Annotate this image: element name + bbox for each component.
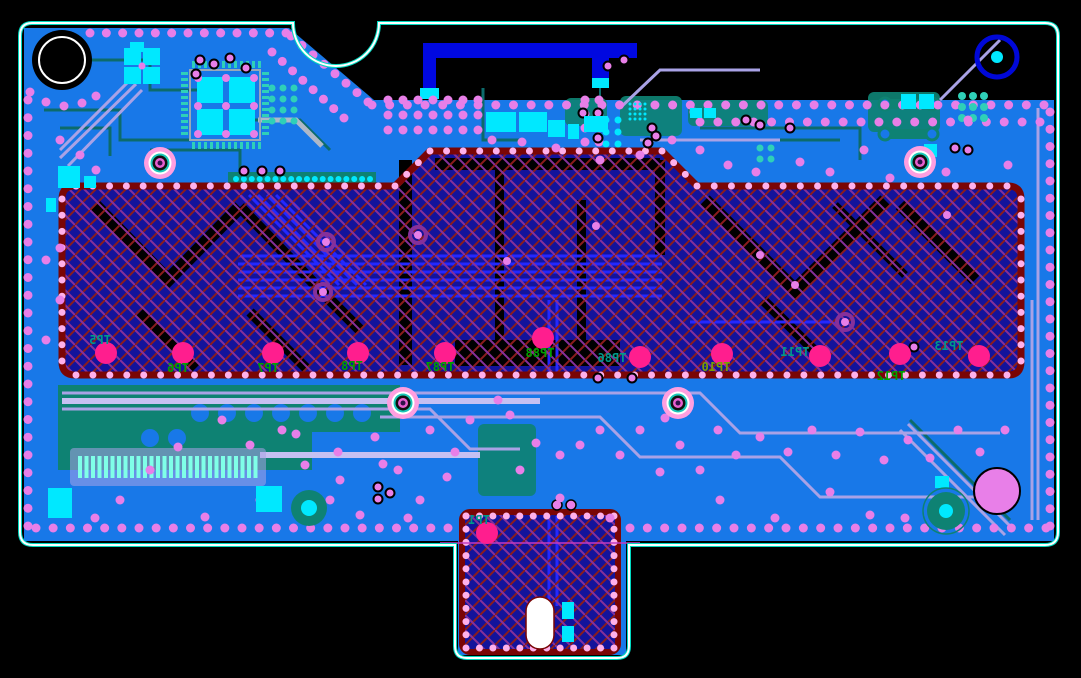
via-dot: [611, 565, 618, 572]
via-dot: [1018, 341, 1025, 348]
via-dot: [810, 101, 819, 110]
via-dot: [265, 29, 274, 38]
via-dot: [1004, 372, 1011, 379]
silkscreen-label-tp8: TP8: [341, 359, 363, 373]
via-dot: [1018, 244, 1025, 251]
via-dot: [403, 171, 410, 178]
silkscreen-label-tp87: TP87: [426, 360, 455, 374]
pcb-layout-drawing[interactable]: TP5TP6TP7TP8TP87TP88TP86TP10TP11TP12TP13…: [0, 0, 1081, 678]
pad-dot: [958, 103, 966, 111]
pad-dot: [615, 117, 622, 124]
via-dot: [728, 183, 735, 190]
via-dot: [326, 372, 333, 379]
via-dot: [59, 341, 66, 348]
via-dot: [42, 98, 51, 107]
via-dot: [278, 57, 287, 66]
via-dot: [863, 101, 872, 110]
via-dot: [953, 372, 960, 379]
via-dot: [184, 29, 193, 38]
pad-dot: [644, 103, 647, 106]
pad-dot: [291, 118, 298, 125]
via-dot: [516, 513, 523, 520]
via-dot: [102, 29, 111, 38]
via-dot: [152, 524, 161, 533]
via-dot: [762, 183, 769, 190]
via-dot: [611, 552, 618, 559]
via-dot: [59, 228, 66, 235]
via-dot: [509, 148, 516, 155]
via-dot: [460, 148, 467, 155]
via-dot: [24, 451, 33, 460]
pad-dot: [639, 108, 642, 111]
pad-dot: [291, 107, 298, 114]
via-dot: [100, 524, 109, 533]
via-dot: [123, 183, 130, 190]
pad-dot: [615, 129, 622, 136]
via-dot: [463, 631, 470, 638]
via-dot: [249, 29, 258, 38]
via-dot: [216, 29, 225, 38]
via-dot: [1046, 159, 1055, 168]
via-dot: [73, 372, 80, 379]
via-dot: [89, 372, 96, 379]
via-dot: [503, 645, 510, 652]
smd-pad: [46, 198, 56, 212]
connector-pin: [247, 456, 251, 478]
via-dot: [821, 118, 830, 127]
connector-pin: [189, 456, 193, 478]
via-dot: [503, 513, 510, 520]
via-dot: [190, 183, 197, 190]
via-dot: [1018, 325, 1025, 332]
via-dot: [24, 397, 33, 406]
via-dot: [293, 372, 300, 379]
edge-connector[interactable]: [70, 448, 266, 486]
via-dot: [323, 524, 332, 533]
via-dot: [24, 309, 33, 318]
connector-pin: [130, 456, 134, 478]
pad-dot: [980, 114, 988, 122]
via-dot: [849, 183, 856, 190]
via-dot: [1042, 524, 1051, 533]
via-dot: [1046, 211, 1055, 220]
via-dot: [987, 372, 994, 379]
pad-dot: [250, 102, 258, 110]
via-dot: [584, 645, 591, 652]
via-dot: [309, 372, 316, 379]
pad-dot: [280, 85, 287, 92]
via-dot: [309, 85, 318, 94]
silkscreen-label-tp13: TP13: [935, 339, 964, 353]
connector-pin: [111, 456, 115, 478]
via-dot: [886, 524, 895, 533]
pad-dot: [629, 108, 632, 111]
via-dot: [670, 159, 677, 166]
via-dot: [496, 372, 503, 379]
via-dot: [151, 29, 160, 38]
via-dot: [291, 183, 298, 190]
via-dot: [1018, 309, 1025, 316]
via-dot: [24, 504, 33, 513]
pad-dot: [269, 107, 276, 114]
pad-dot: [269, 85, 276, 92]
via-dot: [1046, 349, 1055, 358]
via-dot: [298, 76, 307, 85]
connector-pin: [234, 456, 238, 478]
via-dot: [118, 29, 127, 38]
pad-dot: [399, 126, 408, 135]
smd-pad: [704, 108, 716, 118]
pad-dot: [269, 96, 276, 103]
via-dot: [312, 176, 318, 182]
via-dot: [986, 183, 993, 190]
via-dot: [563, 372, 570, 379]
via-dot: [857, 118, 866, 127]
via-dot: [411, 372, 418, 379]
via-dot: [265, 176, 271, 182]
via-dot: [1046, 453, 1055, 462]
via-dot: [375, 183, 382, 190]
via-dot: [106, 372, 113, 379]
via-dot: [919, 372, 926, 379]
via-dot: [910, 118, 919, 127]
via-dot: [1046, 280, 1055, 289]
connector-pin: [215, 456, 219, 478]
via-dot: [1018, 228, 1025, 235]
via-dot: [106, 183, 113, 190]
pad-dot: [280, 96, 287, 103]
via-dot: [933, 101, 942, 110]
via-dot: [516, 645, 523, 652]
via-dot: [342, 79, 351, 88]
via-dot: [1024, 524, 1033, 533]
connector-pin: [137, 456, 141, 478]
connector-pin: [143, 456, 147, 478]
via-dot: [868, 372, 875, 379]
via-dot: [797, 183, 804, 190]
via-dot: [272, 176, 278, 182]
pcb-canvas[interactable]: TP5TP6TP7TP8TP87TP88TP86TP10TP11TP12TP13…: [0, 0, 1081, 678]
silkscreen-label-tp11: TP11: [781, 345, 810, 359]
connector-pin: [228, 456, 232, 478]
via-dot: [377, 372, 384, 379]
via-dot: [331, 69, 340, 78]
via-dot: [611, 645, 618, 652]
pad-dot: [384, 111, 393, 120]
via-dot: [24, 238, 33, 247]
silkscreen-label-tp86: TP86: [598, 351, 627, 365]
via-dot: [665, 372, 672, 379]
via-dot: [543, 513, 550, 520]
via-dot: [733, 372, 740, 379]
pad-dot: [399, 96, 408, 105]
pad-dot: [429, 126, 438, 135]
via-dot: [611, 631, 618, 638]
via-dot: [24, 291, 33, 300]
smd-pad: [519, 112, 547, 132]
via-dot: [609, 148, 616, 155]
via-dot: [24, 167, 33, 176]
smd-pad: [84, 176, 96, 188]
pad-dot: [222, 74, 230, 82]
via-dot: [1046, 401, 1055, 410]
connector-pin: [78, 456, 82, 478]
via-dot: [952, 183, 959, 190]
via-dot: [851, 372, 858, 379]
pad-dot: [639, 103, 642, 106]
via-dot: [868, 524, 877, 533]
pad-dot: [222, 130, 230, 138]
via-dot: [880, 101, 889, 110]
smd-pad: [919, 94, 934, 109]
via-dot: [696, 118, 705, 127]
via-dot: [59, 277, 66, 284]
via-dot: [135, 524, 144, 533]
via-dot: [238, 524, 247, 533]
via-dot: [59, 212, 66, 219]
pad-dot: [444, 126, 453, 135]
pad-dot: [629, 113, 632, 116]
pad-dot: [459, 96, 468, 105]
via-dot: [1046, 194, 1055, 203]
via-dot: [463, 618, 470, 625]
via-dot: [774, 101, 783, 110]
via-dot: [1046, 470, 1055, 479]
connector-pin: [221, 456, 225, 478]
via-dot: [476, 148, 483, 155]
via-dot: [1046, 435, 1055, 444]
via-dot: [268, 48, 277, 57]
connector-pin: [241, 456, 245, 478]
silkscreen-label-tp7: TP7: [257, 361, 279, 375]
via-dot: [1046, 228, 1055, 237]
pad-dot: [459, 111, 468, 120]
via-dot: [319, 95, 328, 104]
via-dot: [463, 579, 470, 586]
via-dot: [24, 255, 33, 264]
pad-dot: [194, 102, 202, 110]
pad-dot: [639, 118, 642, 121]
via-dot: [783, 372, 790, 379]
via-dot: [570, 645, 577, 652]
via-dot: [186, 524, 195, 533]
via-dot: [1046, 246, 1055, 255]
via-dot: [1046, 504, 1055, 513]
via-dot: [892, 118, 901, 127]
via-dot: [26, 88, 35, 97]
test-point-tp13[interactable]: [968, 345, 990, 367]
via-dot: [476, 645, 483, 652]
slot-pill: [526, 597, 554, 649]
via-dot: [83, 524, 92, 533]
via-dot: [562, 101, 571, 110]
pad-dot: [581, 96, 590, 105]
via-dot: [543, 148, 550, 155]
via-dot: [695, 524, 704, 533]
via-dot: [463, 552, 470, 559]
pad-dot: [474, 126, 483, 135]
via-dot: [1036, 118, 1045, 127]
pad-dot: [634, 118, 637, 121]
via-dot: [367, 176, 373, 182]
pad-dot: [194, 130, 202, 138]
via-dot: [814, 183, 821, 190]
via-dot: [489, 645, 496, 652]
pad-dot: [639, 113, 642, 116]
via-dot: [611, 579, 618, 586]
via-dot: [643, 524, 652, 533]
via-dot: [208, 372, 215, 379]
via-dot: [341, 183, 348, 190]
smd-pad: [548, 120, 565, 137]
via-dot: [415, 159, 422, 166]
via-dot: [140, 372, 147, 379]
smd-pad: [584, 116, 608, 132]
via-dot: [747, 524, 756, 533]
via-dot: [834, 524, 843, 533]
pad-dot: [459, 126, 468, 135]
via-dot: [730, 524, 739, 533]
via-dot: [59, 260, 66, 267]
pad-dot: [429, 96, 438, 105]
silkscreen-label-tp10: TP10: [702, 360, 731, 374]
pad-dot: [474, 111, 483, 120]
via-dot: [224, 183, 231, 190]
connector-pin: [85, 456, 89, 478]
via-dot: [225, 372, 232, 379]
via-dot: [340, 114, 349, 123]
via-dot: [255, 524, 264, 533]
via-dot: [816, 524, 825, 533]
via-dot: [731, 118, 740, 127]
connector-pin: [124, 456, 128, 478]
via-dot: [409, 524, 418, 533]
connector-pin: [98, 456, 102, 478]
via-dot: [359, 176, 365, 182]
test-point-tp12[interactable]: [889, 343, 911, 365]
via-dot: [78, 99, 87, 108]
via-dot: [1046, 263, 1055, 272]
via-dot: [611, 592, 618, 599]
via-dot: [1018, 277, 1025, 284]
pad-dot: [644, 118, 647, 121]
via-dot: [329, 104, 338, 113]
via-dot: [351, 176, 357, 182]
via-dot: [592, 148, 599, 155]
via-dot: [1046, 142, 1055, 151]
via-dot: [167, 29, 176, 38]
via-dot: [203, 524, 212, 533]
via-dot: [444, 524, 453, 533]
via-dot: [117, 524, 126, 533]
via-dot: [220, 524, 229, 533]
via-dot: [597, 513, 604, 520]
pad-dot: [958, 92, 966, 100]
via-dot: [1040, 101, 1049, 110]
via-dot: [509, 101, 518, 110]
via-dot: [353, 88, 362, 97]
via-dot: [1046, 332, 1055, 341]
via-dot: [1046, 315, 1055, 324]
via-dot: [576, 148, 583, 155]
via-dot: [240, 183, 247, 190]
via-dot: [24, 113, 33, 122]
via-dot: [24, 131, 33, 140]
test-point-tp11[interactable]: [809, 345, 831, 367]
via-dot: [792, 101, 801, 110]
via-dot: [739, 101, 748, 110]
via-dot: [800, 372, 807, 379]
via-dot: [1018, 358, 1025, 365]
via-dot: [557, 513, 564, 520]
via-dot: [24, 184, 33, 193]
via-dot: [936, 372, 943, 379]
via-dot: [320, 176, 326, 182]
smd-pad: [256, 486, 282, 512]
pad-dot: [222, 102, 230, 110]
via-dot: [694, 183, 701, 190]
via-dot: [24, 433, 33, 442]
via-dot: [392, 183, 399, 190]
via-dot: [615, 101, 624, 110]
via-dot: [782, 524, 791, 533]
pad-dot: [444, 96, 453, 105]
pad-dot: [291, 96, 298, 103]
via-dot: [1004, 101, 1013, 110]
via-dot: [530, 372, 537, 379]
pad-dot: [250, 74, 258, 82]
pad-dot: [969, 92, 977, 100]
pad-dot: [581, 138, 590, 147]
via-dot: [24, 326, 33, 335]
via-dot: [972, 524, 981, 533]
via-dot: [570, 513, 577, 520]
smd-pad: [935, 476, 949, 488]
connector-pin: [176, 456, 180, 478]
via-dot: [611, 605, 618, 612]
via-dot: [123, 372, 130, 379]
pad-dot: [384, 96, 393, 105]
via-dot: [280, 176, 286, 182]
via-dot: [597, 645, 604, 652]
test-point-tp86[interactable]: [629, 346, 651, 368]
silkscreen-label-tp6: TP6: [167, 361, 189, 375]
pad-dot: [414, 96, 423, 105]
pad-dot: [757, 145, 764, 152]
via-dot: [288, 66, 297, 75]
via-dot: [24, 486, 33, 495]
via-dot: [156, 183, 163, 190]
via-dot: [682, 171, 689, 178]
connector-pin: [254, 456, 258, 478]
via-dot: [60, 102, 69, 111]
via-dot: [970, 372, 977, 379]
via-dot: [969, 183, 976, 190]
via-dot: [883, 183, 890, 190]
via-dot: [463, 645, 470, 652]
pad-dot: [399, 111, 408, 120]
pad-dot: [444, 111, 453, 120]
via-dot: [426, 524, 435, 533]
pad-dot: [768, 145, 775, 152]
via-dot: [296, 176, 302, 182]
connector-pin: [91, 456, 95, 478]
smd-pad: [690, 108, 702, 118]
via-dot: [678, 524, 687, 533]
via-dot: [903, 524, 912, 533]
pad-dot: [629, 118, 632, 121]
via-dot: [308, 183, 315, 190]
